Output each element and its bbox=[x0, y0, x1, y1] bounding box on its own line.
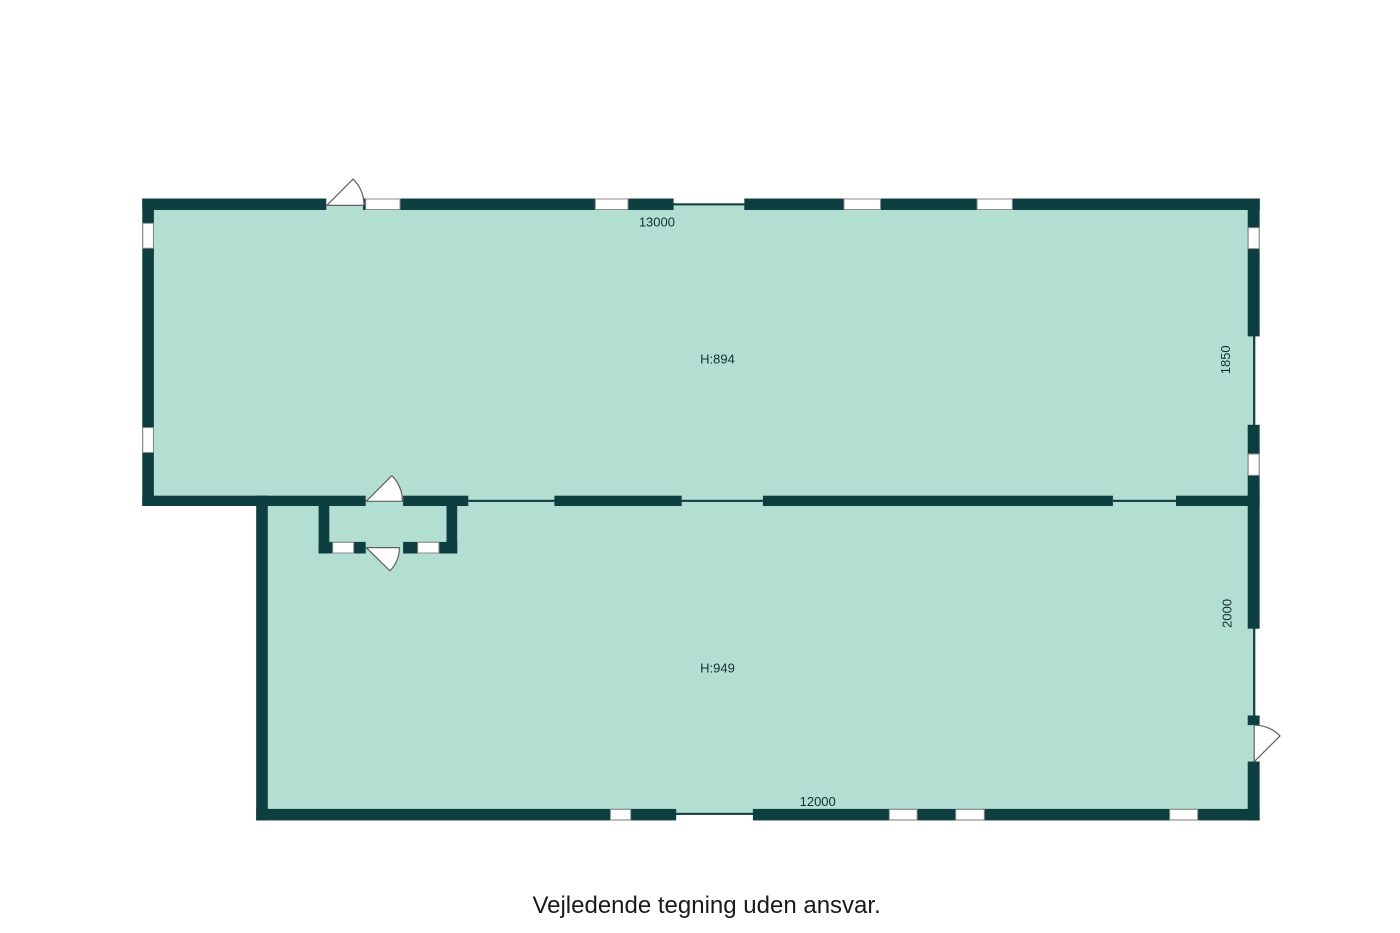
svg-text:Vejledende tegning uden ansvar: Vejledende tegning uden ansvar. bbox=[532, 892, 880, 919]
svg-text:2000: 2000 bbox=[1220, 599, 1235, 628]
svg-text:1850: 1850 bbox=[1218, 345, 1233, 374]
svg-text:H:949: H:949 bbox=[700, 660, 735, 675]
svg-text:12000: 12000 bbox=[800, 794, 836, 809]
svg-text:H:894: H:894 bbox=[700, 352, 735, 367]
svg-text:13000: 13000 bbox=[639, 215, 675, 230]
